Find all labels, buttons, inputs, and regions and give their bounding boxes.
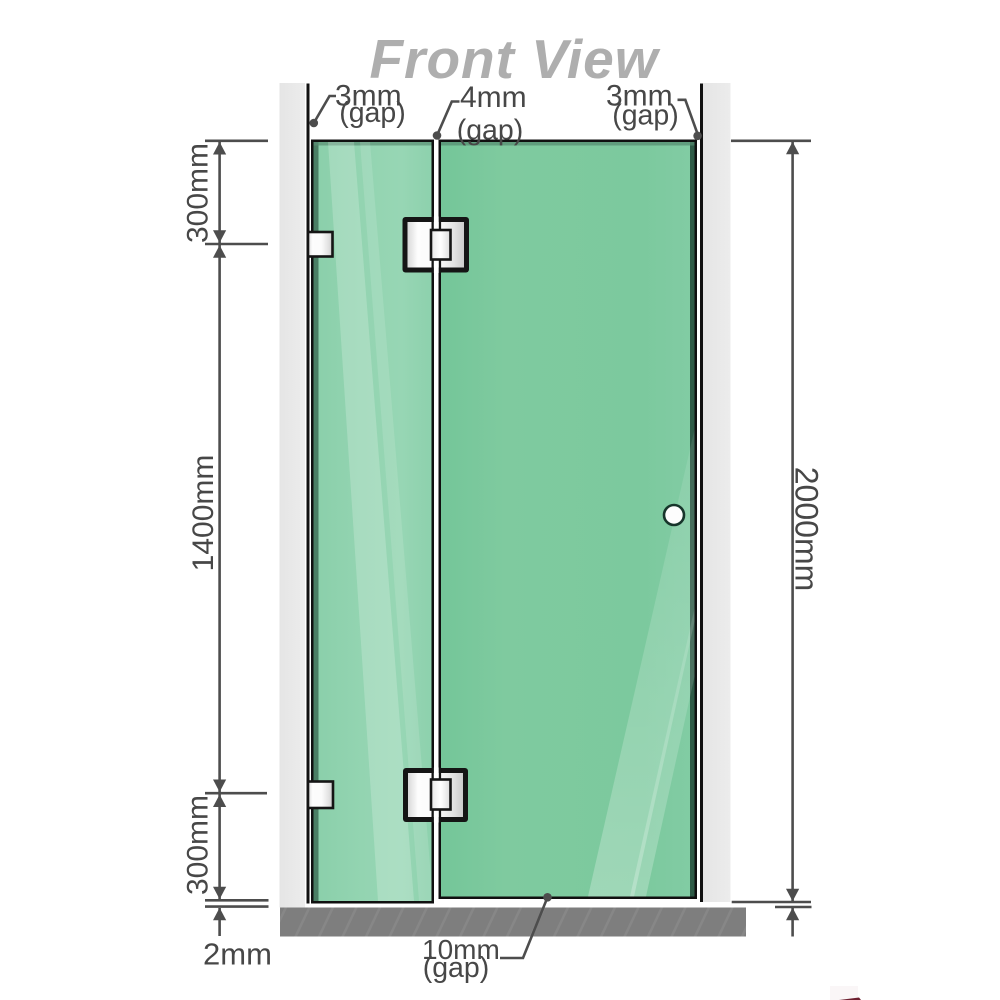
svg-text:2mm: 2mm [203,937,272,972]
svg-text:(gap): (gap) [457,115,524,147]
svg-text:(gap): (gap) [612,100,679,132]
svg-text:2000mm: 2000mm [789,467,825,592]
svg-text:(gap): (gap) [339,97,406,129]
svg-text:300mm: 300mm [182,795,215,895]
svg-text:4mm: 4mm [460,81,527,114]
svg-text:300mm: 300mm [182,143,215,243]
svg-text:(gap): (gap) [423,952,490,984]
svg-text:1400mm: 1400mm [187,455,220,572]
